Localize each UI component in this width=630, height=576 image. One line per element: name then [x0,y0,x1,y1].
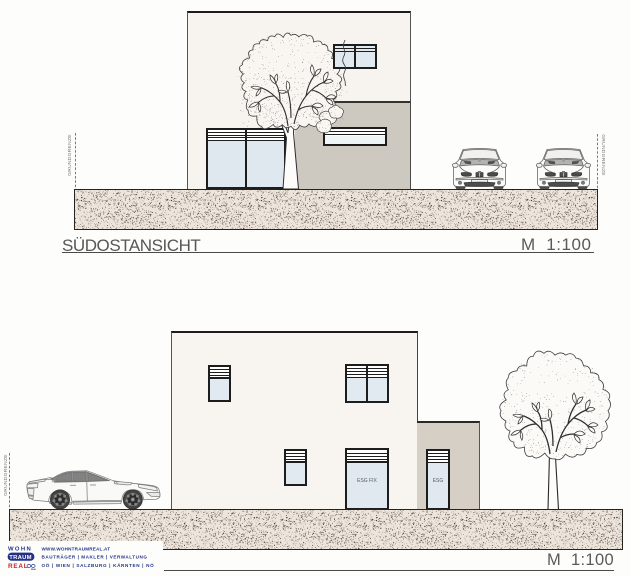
svg-text:WWW.WOHNTRAUMREAL.AT: WWW.WOHNTRAUMREAL.AT [42,546,111,551]
svg-text:ESG: ESG [433,478,444,484]
svg-text:ESG FIX: ESG FIX [357,478,377,484]
svg-text:REAL: REAL [31,568,37,571]
svg-text:GRUNDGRENZE: GRUNDGRENZE [66,134,72,176]
svg-text:OÖ | WIEN | SALZBURG | KÄRNTEN: OÖ | WIEN | SALZBURG | KÄRNTEN | NÖ [42,562,155,568]
svg-text:REAL: REAL [8,563,28,570]
svg-text:GRUNDGRENZE: GRUNDGRENZE [3,454,9,496]
svg-text:WOHN: WOHN [8,547,32,553]
svg-text:TRAUM: TRAUM [9,555,32,561]
svg-text:BAUTRÄGER | MAKLER | VERWALTUN: BAUTRÄGER | MAKLER | VERWALTUNG [42,554,148,560]
svg-text:GRUNDGRENZE: GRUNDGRENZE [600,134,606,176]
